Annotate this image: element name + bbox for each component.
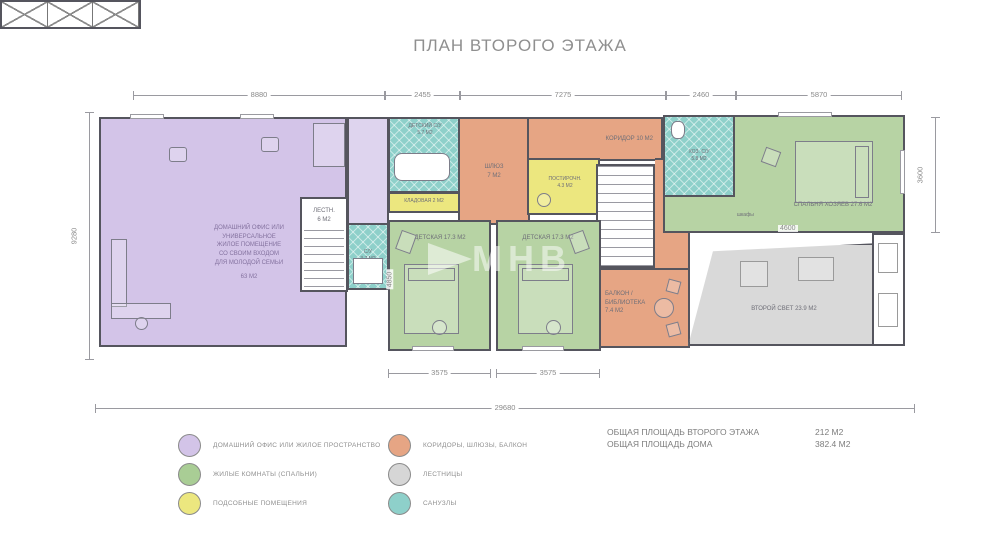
window-mark xyxy=(522,346,564,351)
dim-top-1: 8880 xyxy=(133,86,385,96)
room-corridor-label: КОРИДОР 10 М2 xyxy=(606,135,653,144)
window-mark xyxy=(900,150,905,194)
room-second-light-label: ВТОРОЙ СВЕТ 23.9 М2 xyxy=(714,305,854,314)
summary-floor-area-value: 212 М2 xyxy=(815,426,843,438)
room-home-office-label: ДОМАШНИЙ ОФИС ИЛИ УНИВЕРСАЛЬНОЕ ЖИЛОЕ ПО… xyxy=(191,224,307,282)
room-storage-label: КЛАДОВАЯ 2 М2 xyxy=(392,198,456,205)
shelf-shape xyxy=(878,293,898,327)
area-summary: ОБЩАЯ ПЛОЩАДЬ ВТОРОГО ЭТАЖА 212 М2 ОБЩАЯ… xyxy=(607,426,850,450)
room-shluz: ШЛЮЗ 7 М2 xyxy=(458,117,530,225)
legend-swatch-gray xyxy=(388,463,411,486)
legend-swatch-green xyxy=(178,463,201,486)
legend-label: ЖИЛЫЕ КОМНАТЫ (СПАЛЬНИ) xyxy=(213,471,317,478)
dim-top-5: 5870 xyxy=(736,86,902,96)
room-bathroom-su: С/У 3.7 М2 xyxy=(347,223,389,290)
wardrobe-cell xyxy=(2,2,48,27)
dim-top-3-value: 7275 xyxy=(552,90,575,99)
window-mark xyxy=(240,114,274,119)
dim-left: 9280 xyxy=(80,112,90,360)
stairs-steps xyxy=(304,230,344,288)
dim-right-value: 3600 xyxy=(916,164,925,187)
page-title: ПЛАН ВТОРОГО ЭТАЖА xyxy=(0,36,1000,56)
legend-item-stairs: ЛЕСТНИЦЫ xyxy=(388,460,527,489)
room-kids-bathroom: ДЕТСКИЙ С/У 5.7 М2 xyxy=(388,117,460,193)
legend-right-column: КОРИДОРЫ, ШЛЮЗЫ, БАЛКОН ЛЕСТНИЦЫ САНУЗЛЫ xyxy=(388,431,527,518)
dim-bottom-1-value: 3575 xyxy=(428,368,451,377)
legend-label: САНУЗЛЫ xyxy=(423,500,457,507)
summary-house-area-label: ОБЩАЯ ПЛОЩАДЬ ДОМА xyxy=(607,438,807,450)
bed-shape xyxy=(795,141,873,203)
legend-label: ЛЕСТНИЦЫ xyxy=(423,471,462,478)
dim-top-3: 7275 xyxy=(460,86,666,96)
room-master-bathroom-label: ХОЗ. С/У 5.8 М2 xyxy=(669,149,729,164)
summary-house-area-value: 382.4 М2 xyxy=(815,438,850,450)
room-laundry: ПОСТИРОЧН. 4.3 М2 xyxy=(527,158,600,215)
legend-label: ДОМАШНИЙ ОФИС ИЛИ ЖИЛОЕ ПРОСТРАНСТВО xyxy=(213,442,380,449)
sofa-shape xyxy=(878,243,898,273)
chair-shape xyxy=(761,147,782,168)
sofa-shape xyxy=(111,239,127,307)
room-home-office-text: ДОМАШНИЙ ОФИС ИЛИ УНИВЕРСАЛЬНОЕ ЖИЛОЕ ПО… xyxy=(214,225,284,266)
legend-swatch-orange xyxy=(388,434,411,457)
room-home-office-area: 63 М2 xyxy=(191,273,307,282)
closet-shape xyxy=(313,123,345,167)
room-corridor: КОРИДОР 10 М2 xyxy=(527,117,663,161)
toilet-shape xyxy=(671,121,685,139)
bathtub-shape xyxy=(394,153,450,181)
floor-plan-page: ПЛАН ВТОРОГО ЭТАЖА 8880 2455 7275 2460 5… xyxy=(0,0,1000,538)
room-shluz-label: ШЛЮЗ 7 М2 xyxy=(460,163,528,180)
summary-house-area: ОБЩАЯ ПЛОЩАДЬ ДОМА 382.4 М2 xyxy=(607,438,850,450)
room-master-bathroom: ХОЗ. С/У 5.8 М2 xyxy=(663,115,735,197)
legend-swatch-yellow xyxy=(178,492,201,515)
dim-top-2: 2455 xyxy=(385,86,460,96)
room-balcony-library: БАЛКОН / БИБЛИОТЕКА 7.4 М2 xyxy=(595,268,690,348)
room-laundry-label: ПОСТИРОЧН. 4.3 М2 xyxy=(535,176,595,191)
summary-floor-area: ОБЩАЯ ПЛОЩАДЬ ВТОРОГО ЭТАЖА 212 М2 xyxy=(607,426,850,438)
legend-label: КОРИДОРЫ, ШЛЮЗЫ, БАЛКОН xyxy=(423,442,527,449)
summary-floor-area-label: ОБЩАЯ ПЛОЩАДЬ ВТОРОГО ЭТАЖА xyxy=(607,426,807,438)
window-mark xyxy=(778,112,832,117)
table-shape xyxy=(654,298,674,318)
dim-top-2-value: 2455 xyxy=(411,90,434,99)
dim-left-value: 9280 xyxy=(70,225,79,248)
flag-icon xyxy=(428,243,472,275)
legend-swatch-teal xyxy=(388,492,411,515)
legend-item-utility: ПОДСОБНЫЕ ПОМЕЩЕНИЯ xyxy=(178,489,380,518)
chair-shape xyxy=(666,322,682,338)
legend-item-corridors: КОРИДОРЫ, ШЛЮЗЫ, БАЛКОН xyxy=(388,431,527,460)
right-side-area xyxy=(872,233,905,346)
wardrobe-label: шкафы xyxy=(737,212,754,218)
main-staircase xyxy=(596,164,655,268)
wardrobe-row xyxy=(0,0,141,29)
room-storage: КЛАДОВАЯ 2 М2 xyxy=(388,192,460,213)
shower-shape xyxy=(353,258,383,284)
room-second-light: ВТОРОЙ СВЕТ 23.9 М2 xyxy=(688,243,880,346)
chair-shape xyxy=(432,320,447,335)
washer-shape xyxy=(537,193,551,207)
wardrobe-cell xyxy=(93,2,139,27)
room-stairs-small: ЛЕСТН. 6 М2 xyxy=(300,197,348,292)
legend-item-home-office: ДОМАШНИЙ ОФИС ИЛИ ЖИЛОЕ ПРОСТРАНСТВО xyxy=(178,431,380,460)
watermark-logo: МНВ xyxy=(428,238,572,280)
dim-kids-depth-value: 4850 xyxy=(386,272,393,288)
dim-bottom-1: 3575 xyxy=(388,364,491,374)
dim-top-4-value: 2460 xyxy=(690,90,713,99)
legend-item-bathrooms: САНУЗЛЫ xyxy=(388,489,527,518)
room-kids-bathroom-label: ДЕТСКИЙ С/У 5.7 М2 xyxy=(394,123,456,138)
dim-right: 3600 xyxy=(926,117,936,233)
legend-swatch-purple xyxy=(178,434,201,457)
armchair-shape xyxy=(261,137,279,152)
wardrobe-cell xyxy=(48,2,94,27)
dim-top-1-value: 8880 xyxy=(248,90,271,99)
watermark-text: МНВ xyxy=(472,238,572,280)
room-stairs-small-label: ЛЕСТН. 6 М2 xyxy=(302,207,346,224)
dim-bottom-2-value: 3575 xyxy=(537,368,560,377)
table-shape xyxy=(798,257,834,281)
armchair-shape xyxy=(169,147,187,162)
pillow-shape xyxy=(855,146,869,198)
chair-shape xyxy=(666,279,682,295)
entry-strip xyxy=(347,117,389,225)
dim-total: 29680 xyxy=(95,399,915,409)
dim-top-4: 2460 xyxy=(666,86,736,96)
table-shape xyxy=(135,317,148,330)
window-mark xyxy=(412,346,454,351)
dim-kids-depth: 4850 xyxy=(386,270,393,290)
dim-wardrobe: 4600 xyxy=(778,225,798,232)
dim-wardrobe-value: 4600 xyxy=(780,225,796,232)
window-mark xyxy=(130,114,164,119)
legend-label: ПОДСОБНЫЕ ПОМЕЩЕНИЯ xyxy=(213,500,307,507)
dim-bottom-2: 3575 xyxy=(496,364,600,374)
table-shape xyxy=(740,261,768,287)
legend-item-living-rooms: ЖИЛЫЕ КОМНАТЫ (СПАЛЬНИ) xyxy=(178,460,380,489)
dim-top-5-value: 5870 xyxy=(808,90,831,99)
dim-total-value: 29680 xyxy=(492,403,519,412)
chair-shape xyxy=(546,320,561,335)
legend-left-column: ДОМАШНИЙ ОФИС ИЛИ ЖИЛОЕ ПРОСТРАНСТВО ЖИЛ… xyxy=(178,431,380,518)
